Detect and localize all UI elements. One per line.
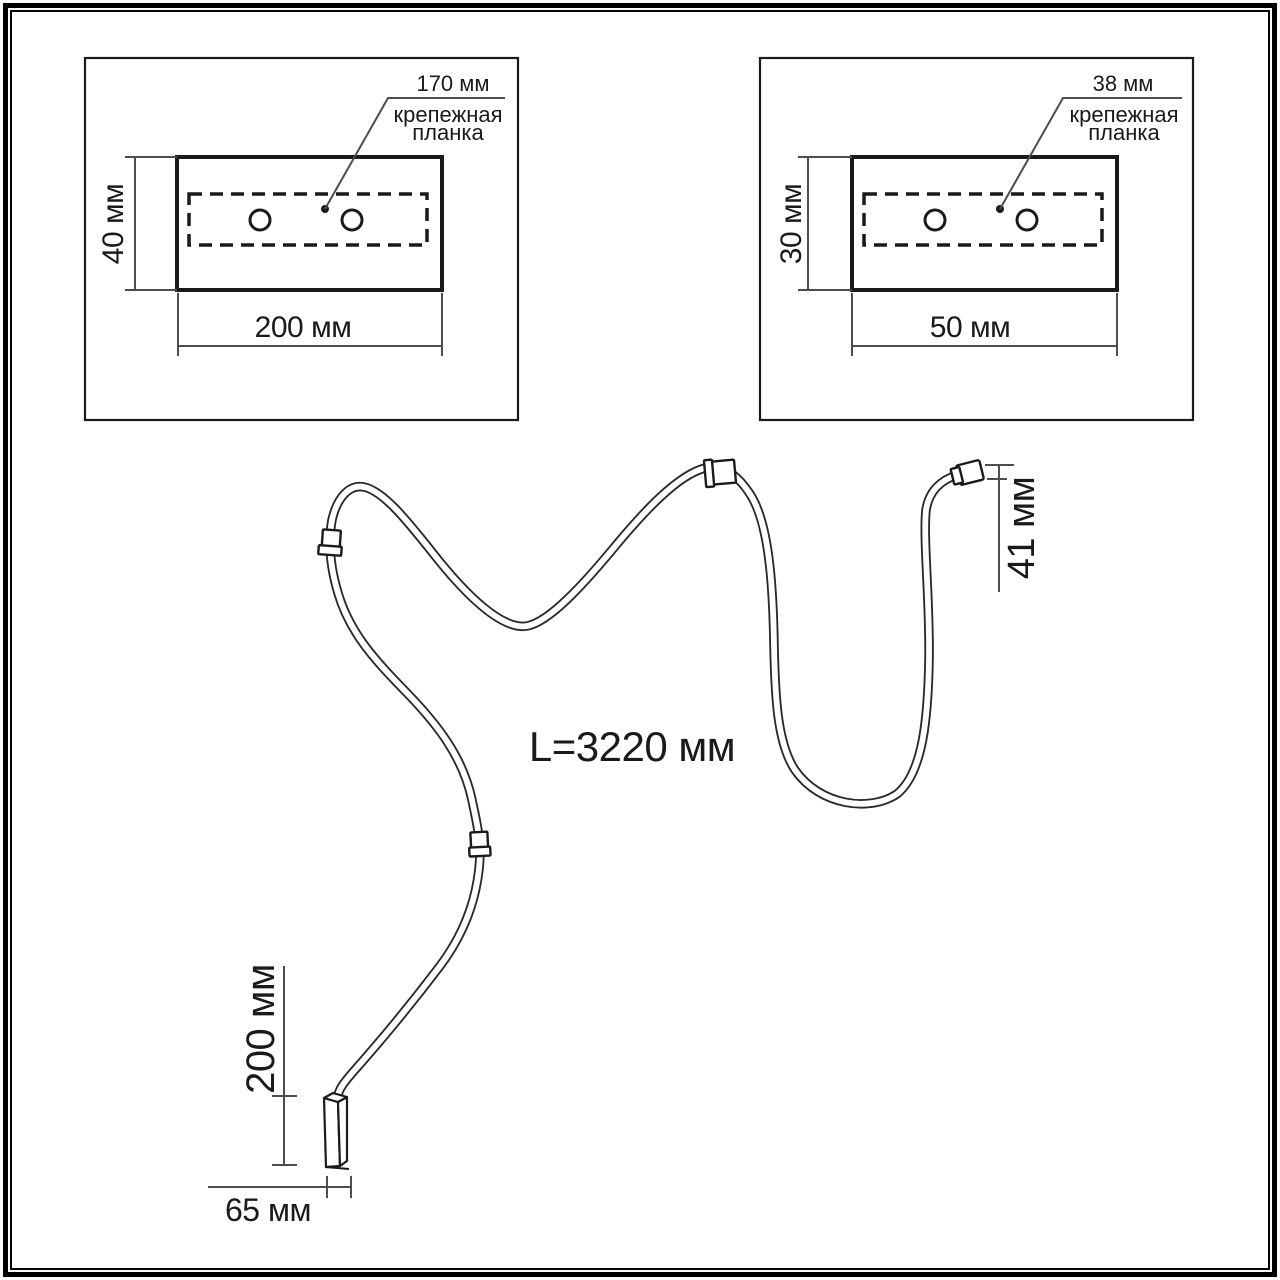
connector-length-dimension-label: 200 мм [241, 964, 281, 1094]
plate-outline-right [852, 157, 1117, 290]
end-cap-icon [950, 460, 984, 487]
right-height-dimension-label: 30 мм [777, 184, 807, 264]
cable-clip-icon [468, 831, 490, 856]
cable-length-label: L=3220 мм [529, 726, 735, 768]
end-cap-dimension-label: 41 мм [1003, 477, 1041, 580]
left-width-dimension-label: 200 мм [255, 313, 352, 343]
cable-clip-icon [318, 529, 343, 556]
screw-hole-icon [1017, 210, 1037, 230]
right-offset-dimension-label: 38 мм [1093, 73, 1154, 95]
screw-hole-icon [342, 210, 362, 230]
screw-hole-icon [925, 210, 945, 230]
right-width-dimension-label: 50 мм [930, 313, 1010, 343]
cable-clip-icon [704, 458, 736, 488]
line-art [0, 0, 1280, 1280]
left-offset-dimension-label: 170 мм [416, 73, 489, 95]
left-mounting-bar-label: крепежная планка [393, 106, 502, 142]
cable-art [208, 458, 1014, 1198]
cable-path-inner [330, 467, 957, 1097]
connector-foot-line [325, 1167, 349, 1169]
plate-outline-left [177, 157, 442, 290]
right-mounting-bar-label: крепежная планка [1069, 106, 1178, 142]
left-height-dimension-label: 40 мм [99, 184, 129, 264]
connector-box-icon [324, 1093, 349, 1169]
cable-path [330, 467, 957, 1097]
height-dimension-lines-left [125, 157, 177, 290]
fixture-dimension-drawing: { "colors":{ "background":"#ffffff", "in… [0, 0, 1280, 1280]
screw-hole-icon [250, 210, 270, 230]
connector-width-dimension-label: 65 мм [225, 1194, 311, 1226]
